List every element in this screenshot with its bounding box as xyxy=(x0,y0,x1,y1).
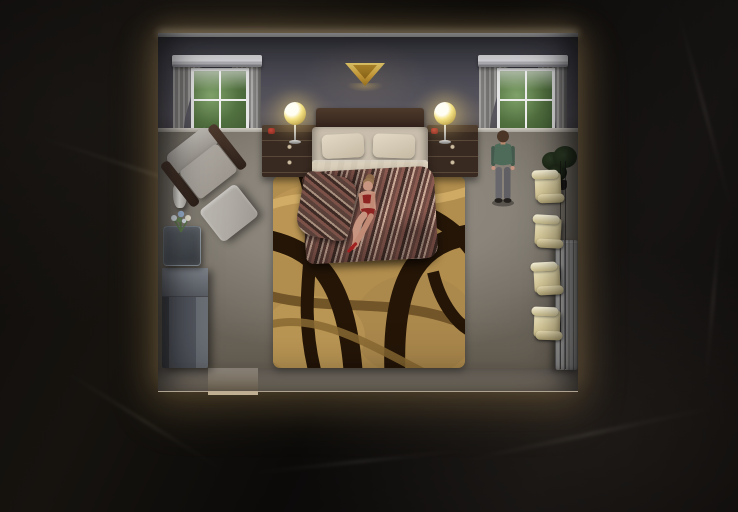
scroll-icon[interactable] xyxy=(531,261,563,296)
bottom-wall-left xyxy=(158,368,208,392)
bedroom-cutaway xyxy=(158,33,578,391)
bottom-wall-right xyxy=(258,368,578,392)
pillow xyxy=(321,133,364,159)
curtain-valance xyxy=(172,55,262,67)
lamp-shade-glowing xyxy=(434,102,456,125)
scroll-hanging-string xyxy=(565,161,566,369)
marble-vein xyxy=(676,10,733,214)
pillow xyxy=(373,133,416,158)
lamp-shade-glowing xyxy=(284,102,306,125)
cabinet-top xyxy=(162,268,208,297)
wall-sconce xyxy=(345,63,385,86)
scroll-roll xyxy=(537,193,564,203)
game-viewport xyxy=(0,0,738,512)
window-glass xyxy=(497,68,555,132)
marble-vein xyxy=(250,449,469,475)
character-man[interactable] xyxy=(488,129,518,207)
alarm-clock xyxy=(268,128,275,134)
headboard xyxy=(316,108,424,129)
man-figure xyxy=(488,129,518,207)
lamp-base xyxy=(439,140,451,144)
scroll-roll xyxy=(531,170,558,180)
ottoman-cushion xyxy=(199,183,260,243)
scroll-roll xyxy=(536,238,563,248)
scroll-roll xyxy=(532,214,559,224)
table-lamp-left xyxy=(284,102,308,150)
scroll-roll xyxy=(535,331,562,341)
lamp-base xyxy=(289,140,301,144)
cabinet xyxy=(162,268,208,368)
curtain-valance xyxy=(478,55,568,67)
scroll-icon[interactable] xyxy=(532,169,563,203)
marble-vein xyxy=(704,217,722,387)
scroll-roll xyxy=(531,306,558,316)
scroll-roll xyxy=(536,285,563,295)
scroll-icon[interactable] xyxy=(532,214,564,249)
woman-figure xyxy=(345,173,389,253)
marble-vein xyxy=(462,405,717,463)
table-lamp-right xyxy=(434,102,458,150)
doorway xyxy=(208,368,258,395)
scroll-icon[interactable] xyxy=(531,306,562,340)
scroll-roll xyxy=(530,261,557,271)
ottoman xyxy=(204,191,254,235)
radiator xyxy=(555,240,578,370)
character-woman[interactable] xyxy=(345,173,389,253)
